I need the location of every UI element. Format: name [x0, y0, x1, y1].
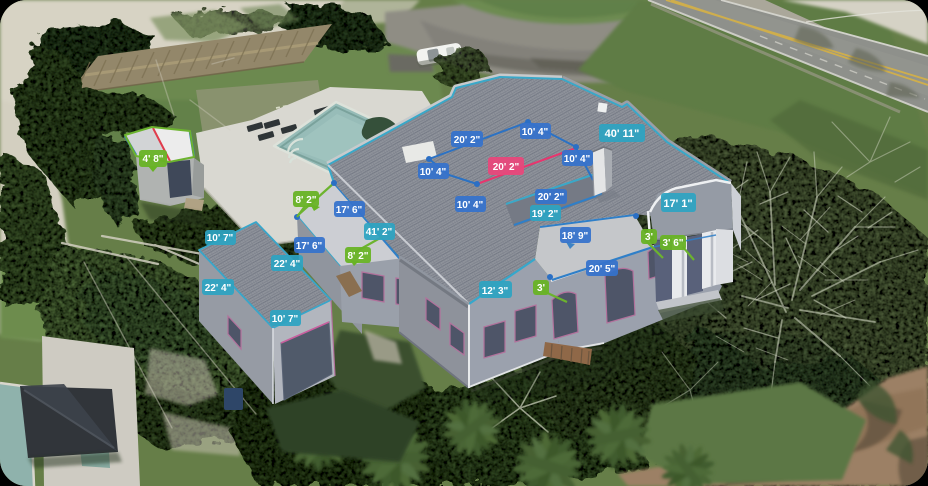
- svg-text:10' 4": 10' 4": [564, 154, 591, 165]
- svg-text:41' 2": 41' 2": [366, 227, 393, 238]
- svg-text:19' 2": 19' 2": [532, 209, 559, 220]
- svg-text:4' 8": 4' 8": [142, 154, 163, 165]
- svg-text:3' 6": 3' 6": [662, 238, 683, 249]
- svg-text:3': 3': [645, 232, 653, 243]
- svg-text:8' 2": 8' 2": [295, 195, 316, 206]
- svg-text:12' 3": 12' 3": [482, 286, 509, 297]
- svg-text:22' 4": 22' 4": [205, 283, 232, 294]
- svg-text:20' 5": 20' 5": [589, 264, 616, 275]
- svg-text:3': 3': [537, 283, 545, 294]
- svg-text:10' 4": 10' 4": [522, 127, 549, 138]
- svg-text:10' 7": 10' 7": [272, 314, 299, 325]
- svg-text:17' 6": 17' 6": [296, 241, 323, 252]
- svg-text:17' 6": 17' 6": [336, 205, 363, 216]
- svg-text:20' 2": 20' 2": [538, 192, 565, 203]
- svg-text:8' 2": 8' 2": [347, 251, 368, 262]
- svg-text:20' 2": 20' 2": [493, 162, 520, 173]
- svg-text:18' 9": 18' 9": [562, 231, 589, 242]
- svg-text:10' 7": 10' 7": [207, 233, 234, 244]
- svg-text:10' 4": 10' 4": [420, 167, 447, 178]
- svg-text:17' 1": 17' 1": [663, 198, 692, 210]
- svg-text:22' 4": 22' 4": [274, 259, 301, 270]
- svg-text:20' 2": 20' 2": [454, 135, 481, 146]
- svg-text:40' 11": 40' 11": [605, 128, 640, 140]
- svg-text:10' 4": 10' 4": [457, 200, 484, 211]
